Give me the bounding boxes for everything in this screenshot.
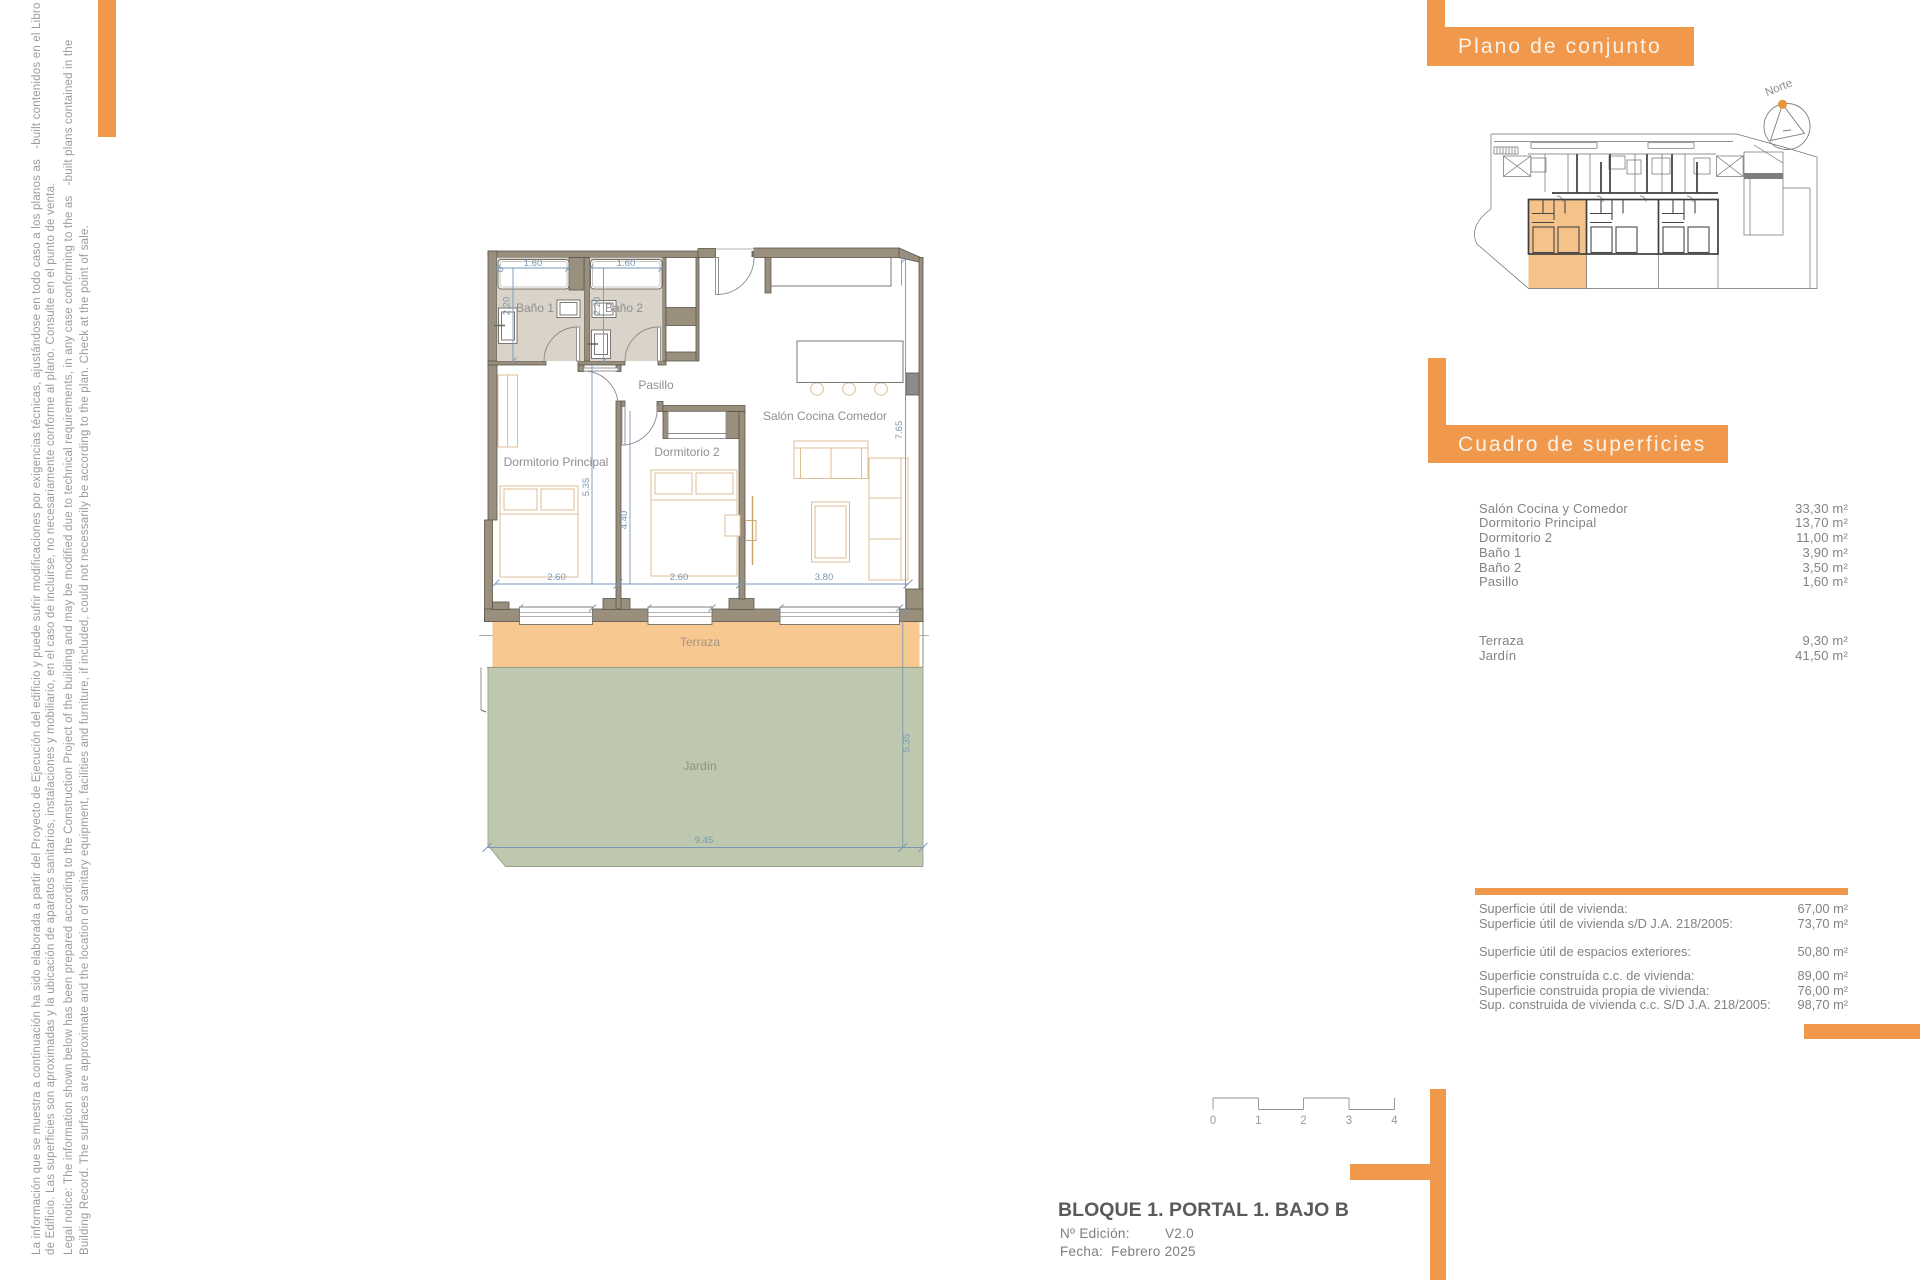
svg-text:Baño 1: Baño 1 — [516, 301, 554, 315]
svg-text:2.60: 2.60 — [670, 572, 689, 583]
svg-text:Dormitorio Principal: Dormitorio Principal — [504, 455, 609, 469]
svg-text:7.65: 7.65 — [894, 421, 905, 440]
svg-text:Dormitorio 2: Dormitorio 2 — [654, 445, 720, 459]
svg-text:Jardín: Jardín — [683, 759, 716, 773]
svg-text:5.35: 5.35 — [581, 478, 592, 497]
svg-text:Salón Cocina Comedor: Salón Cocina Comedor — [763, 409, 887, 423]
svg-text:5.35: 5.35 — [902, 734, 913, 753]
svg-text:1.60: 1.60 — [617, 258, 636, 269]
svg-text:1: 1 — [1255, 1115, 1261, 1127]
svg-text:4: 4 — [1391, 1115, 1398, 1127]
svg-text:2.20: 2.20 — [502, 297, 513, 316]
svg-text:3: 3 — [1346, 1115, 1352, 1127]
svg-text:1.60: 1.60 — [524, 258, 543, 269]
svg-text:Norte: Norte — [1764, 77, 1795, 99]
svg-text:Terraza: Terraza — [680, 635, 720, 649]
svg-text:2.20: 2.20 — [592, 297, 603, 316]
svg-text:2.60: 2.60 — [547, 572, 566, 583]
svg-text:Baño 2: Baño 2 — [605, 301, 643, 315]
svg-text:Pasillo: Pasillo — [638, 378, 674, 392]
svg-text:2: 2 — [1300, 1115, 1306, 1127]
svg-text:0: 0 — [1210, 1115, 1216, 1127]
svg-text:9.45: 9.45 — [695, 835, 714, 846]
svg-text:4.40: 4.40 — [619, 511, 630, 530]
svg-text:3.80: 3.80 — [815, 572, 834, 583]
